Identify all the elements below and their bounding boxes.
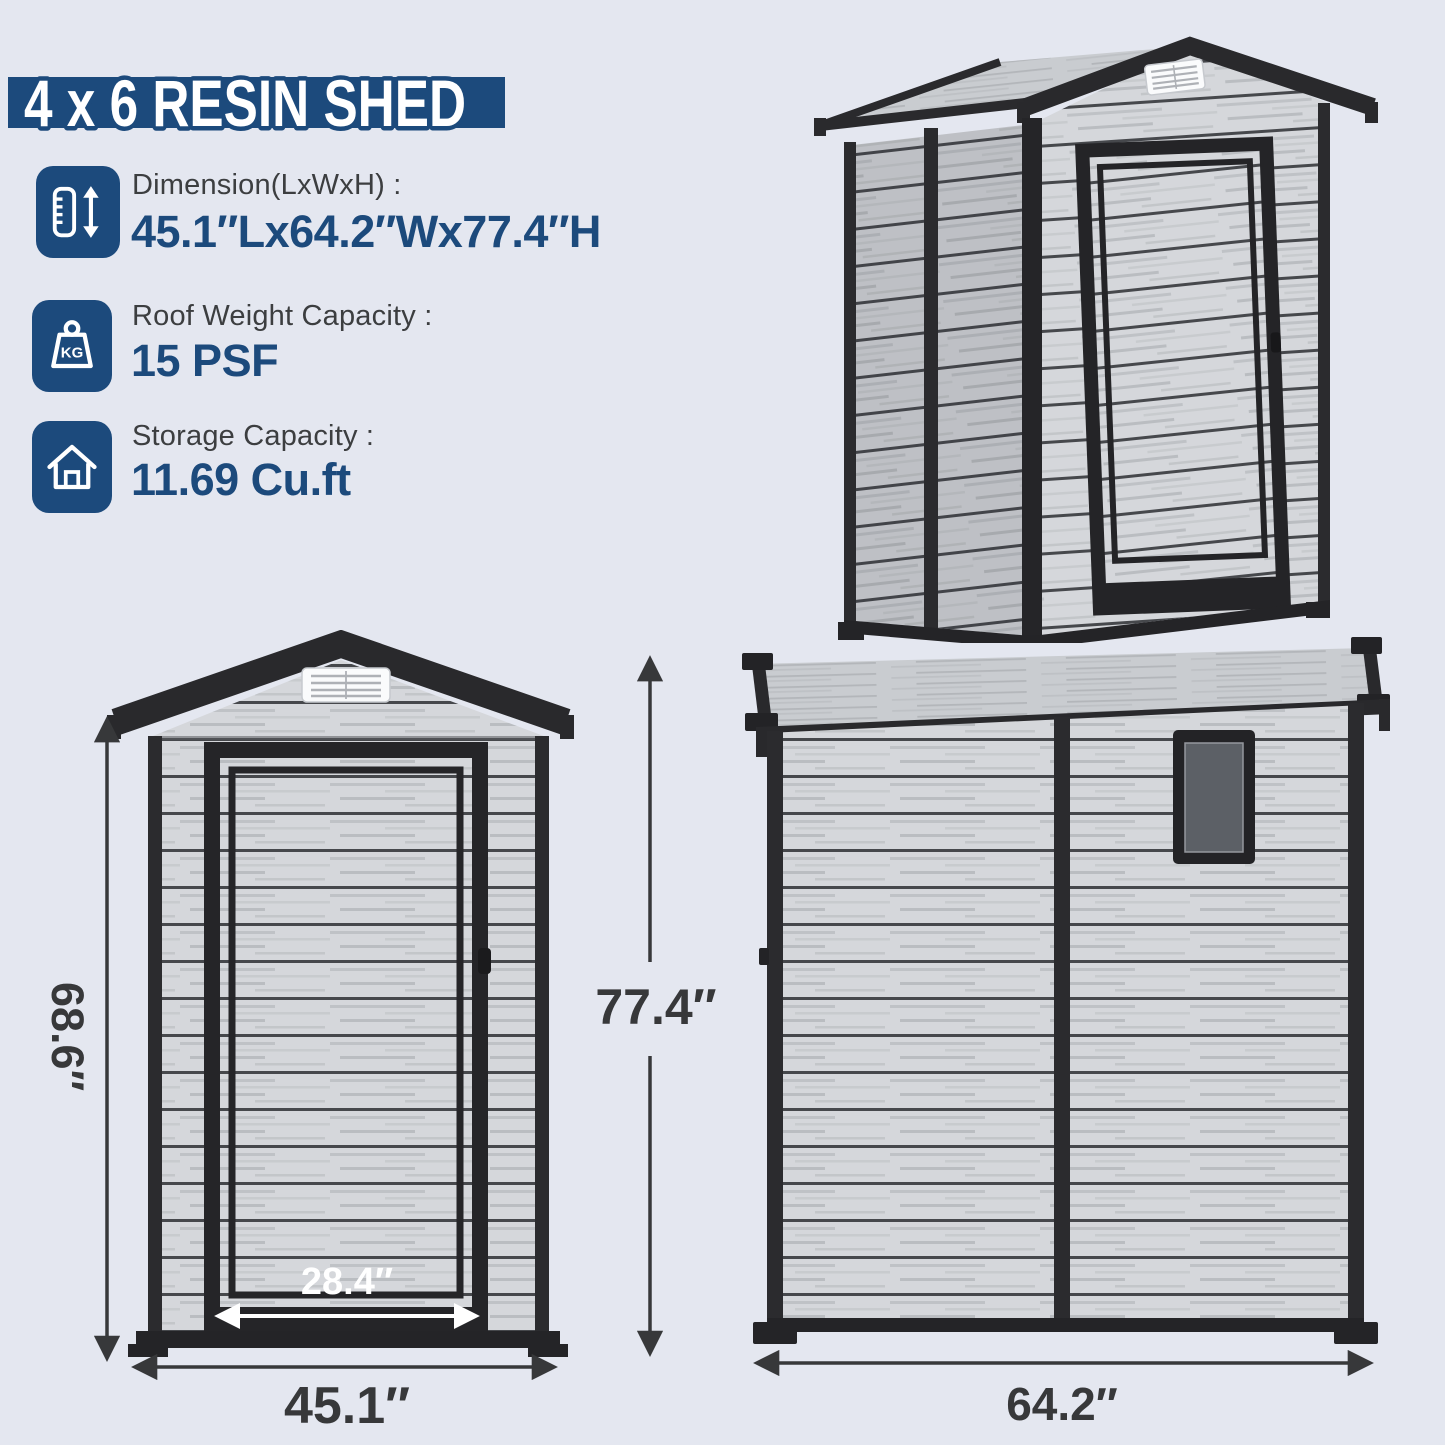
gable-vent-3d — [1144, 59, 1205, 96]
shed-infographic: 4 x 6 RESIN SHED Dimension(LxWxH) : 45.1… — [0, 0, 1445, 1445]
kg-text: KG — [61, 344, 84, 361]
door-handle-front — [478, 948, 491, 974]
shed-3d-view — [760, 18, 1420, 643]
height-ruler-glyph — [47, 179, 109, 245]
side-dimension-annotations: 64.2″ — [757, 1363, 1370, 1430]
door-handle-3d — [1270, 332, 1281, 352]
weight-kg-icon: KG — [32, 300, 112, 392]
front-wall-height-label: 68.6″ — [42, 982, 93, 1091]
gable-vent-front — [302, 668, 390, 702]
page-title: 4 x 6 RESIN SHED — [24, 66, 466, 136]
shed-3d-drawing — [814, 46, 1378, 643]
height-ruler-icon — [36, 166, 120, 258]
spec-storage-value: 11.69 Cu.ft — [131, 456, 351, 503]
house-storage-icon — [32, 421, 112, 513]
shed-side-drawing — [742, 637, 1390, 1344]
spec-dimension-value: 45.1″Lx64.2″Wx77.4″H — [131, 208, 601, 255]
door-width-label: 28.4″ — [301, 1261, 393, 1303]
weight-kg-glyph: KG — [42, 313, 102, 379]
title-text-graphic: 4 x 6 RESIN SHED — [8, 36, 648, 136]
side-width-label: 64.2″ — [1006, 1378, 1118, 1430]
side-window — [1173, 730, 1255, 864]
total-height-label: 77.4″ — [595, 979, 716, 1035]
side-latch — [759, 948, 769, 965]
shed-front-drawing — [107, 644, 574, 1357]
house-storage-glyph — [42, 434, 102, 500]
spec-dimension-label: Dimension(LxWxH) : — [132, 170, 401, 202]
spec-storage-label: Storage Capacity : — [132, 421, 374, 453]
shed-front-view: 28.4″ 68.6″ 45.1″ 77.4″ — [30, 630, 720, 1445]
shed-side-view: 64.2″ — [740, 630, 1445, 1445]
door-3d — [1075, 136, 1291, 615]
door-front — [204, 742, 491, 1335]
spec-roof-weight-value: 15 PSF — [131, 337, 278, 384]
front-width-label: 45.1″ — [284, 1377, 410, 1435]
spec-roof-weight-label: Roof Weight Capacity : — [132, 301, 432, 333]
